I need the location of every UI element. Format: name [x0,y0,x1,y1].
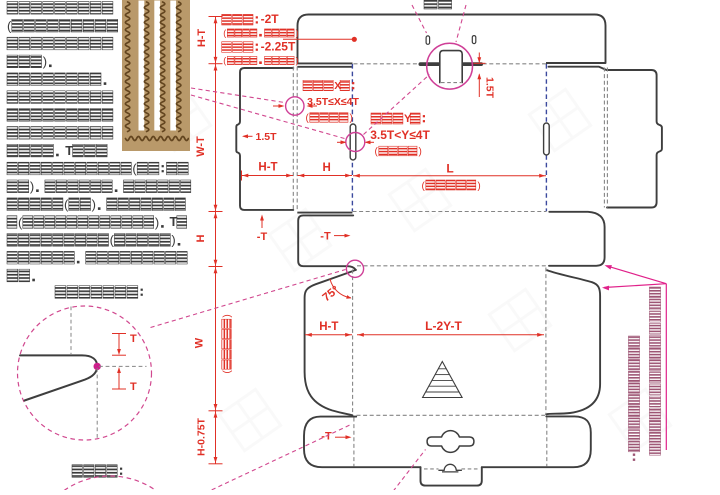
svg-text:): ) [350,113,353,124]
svg-text:): ) [171,233,175,248]
svg-text:T: T [65,143,73,158]
svg-text:): ) [296,28,299,38]
svg-text:H: H [322,162,330,174]
svg-text:): ) [222,314,233,317]
svg-text:W: W [194,337,206,348]
svg-text:1.5T: 1.5T [255,131,277,143]
svg-text:L-2Y-T: L-2Y-T [425,319,462,333]
svg-text:(: ( [7,18,12,33]
svg-text:-T: -T [320,230,331,242]
svg-text:H-T: H-T [258,162,277,174]
svg-text:(: ( [110,233,115,248]
svg-text:-2.25T: -2.25T [261,39,296,53]
svg-text:(: ( [132,161,137,176]
svg-text:(: ( [18,215,23,230]
svg-text:(: ( [64,197,69,212]
svg-text:-T: -T [257,231,268,243]
svg-text:): ) [296,56,299,66]
svg-text:): ) [92,197,96,212]
svg-text:(: ( [223,56,226,66]
svg-text:H-0.75T: H-0.75T [196,417,208,456]
svg-text:L: L [446,161,453,175]
svg-text:T: T [170,214,178,229]
svg-text:): ) [30,179,34,194]
svg-text:): ) [155,215,159,230]
svg-text:H: H [195,234,207,242]
svg-text:T: T [130,381,137,393]
svg-text:(: ( [223,28,226,38]
svg-text:): ) [419,147,422,158]
svg-text:H-T: H-T [319,321,338,333]
svg-text:H-T: H-T [196,29,208,48]
svg-text:3.5T<Y≤4T: 3.5T<Y≤4T [370,128,430,142]
svg-text:T: T [130,333,137,345]
svg-text:W-T: W-T [195,136,207,157]
svg-text:): ) [43,54,47,69]
svg-text:1.5T: 1.5T [484,77,496,99]
svg-text:): ) [477,181,480,192]
svg-text:-2T: -2T [261,12,280,26]
